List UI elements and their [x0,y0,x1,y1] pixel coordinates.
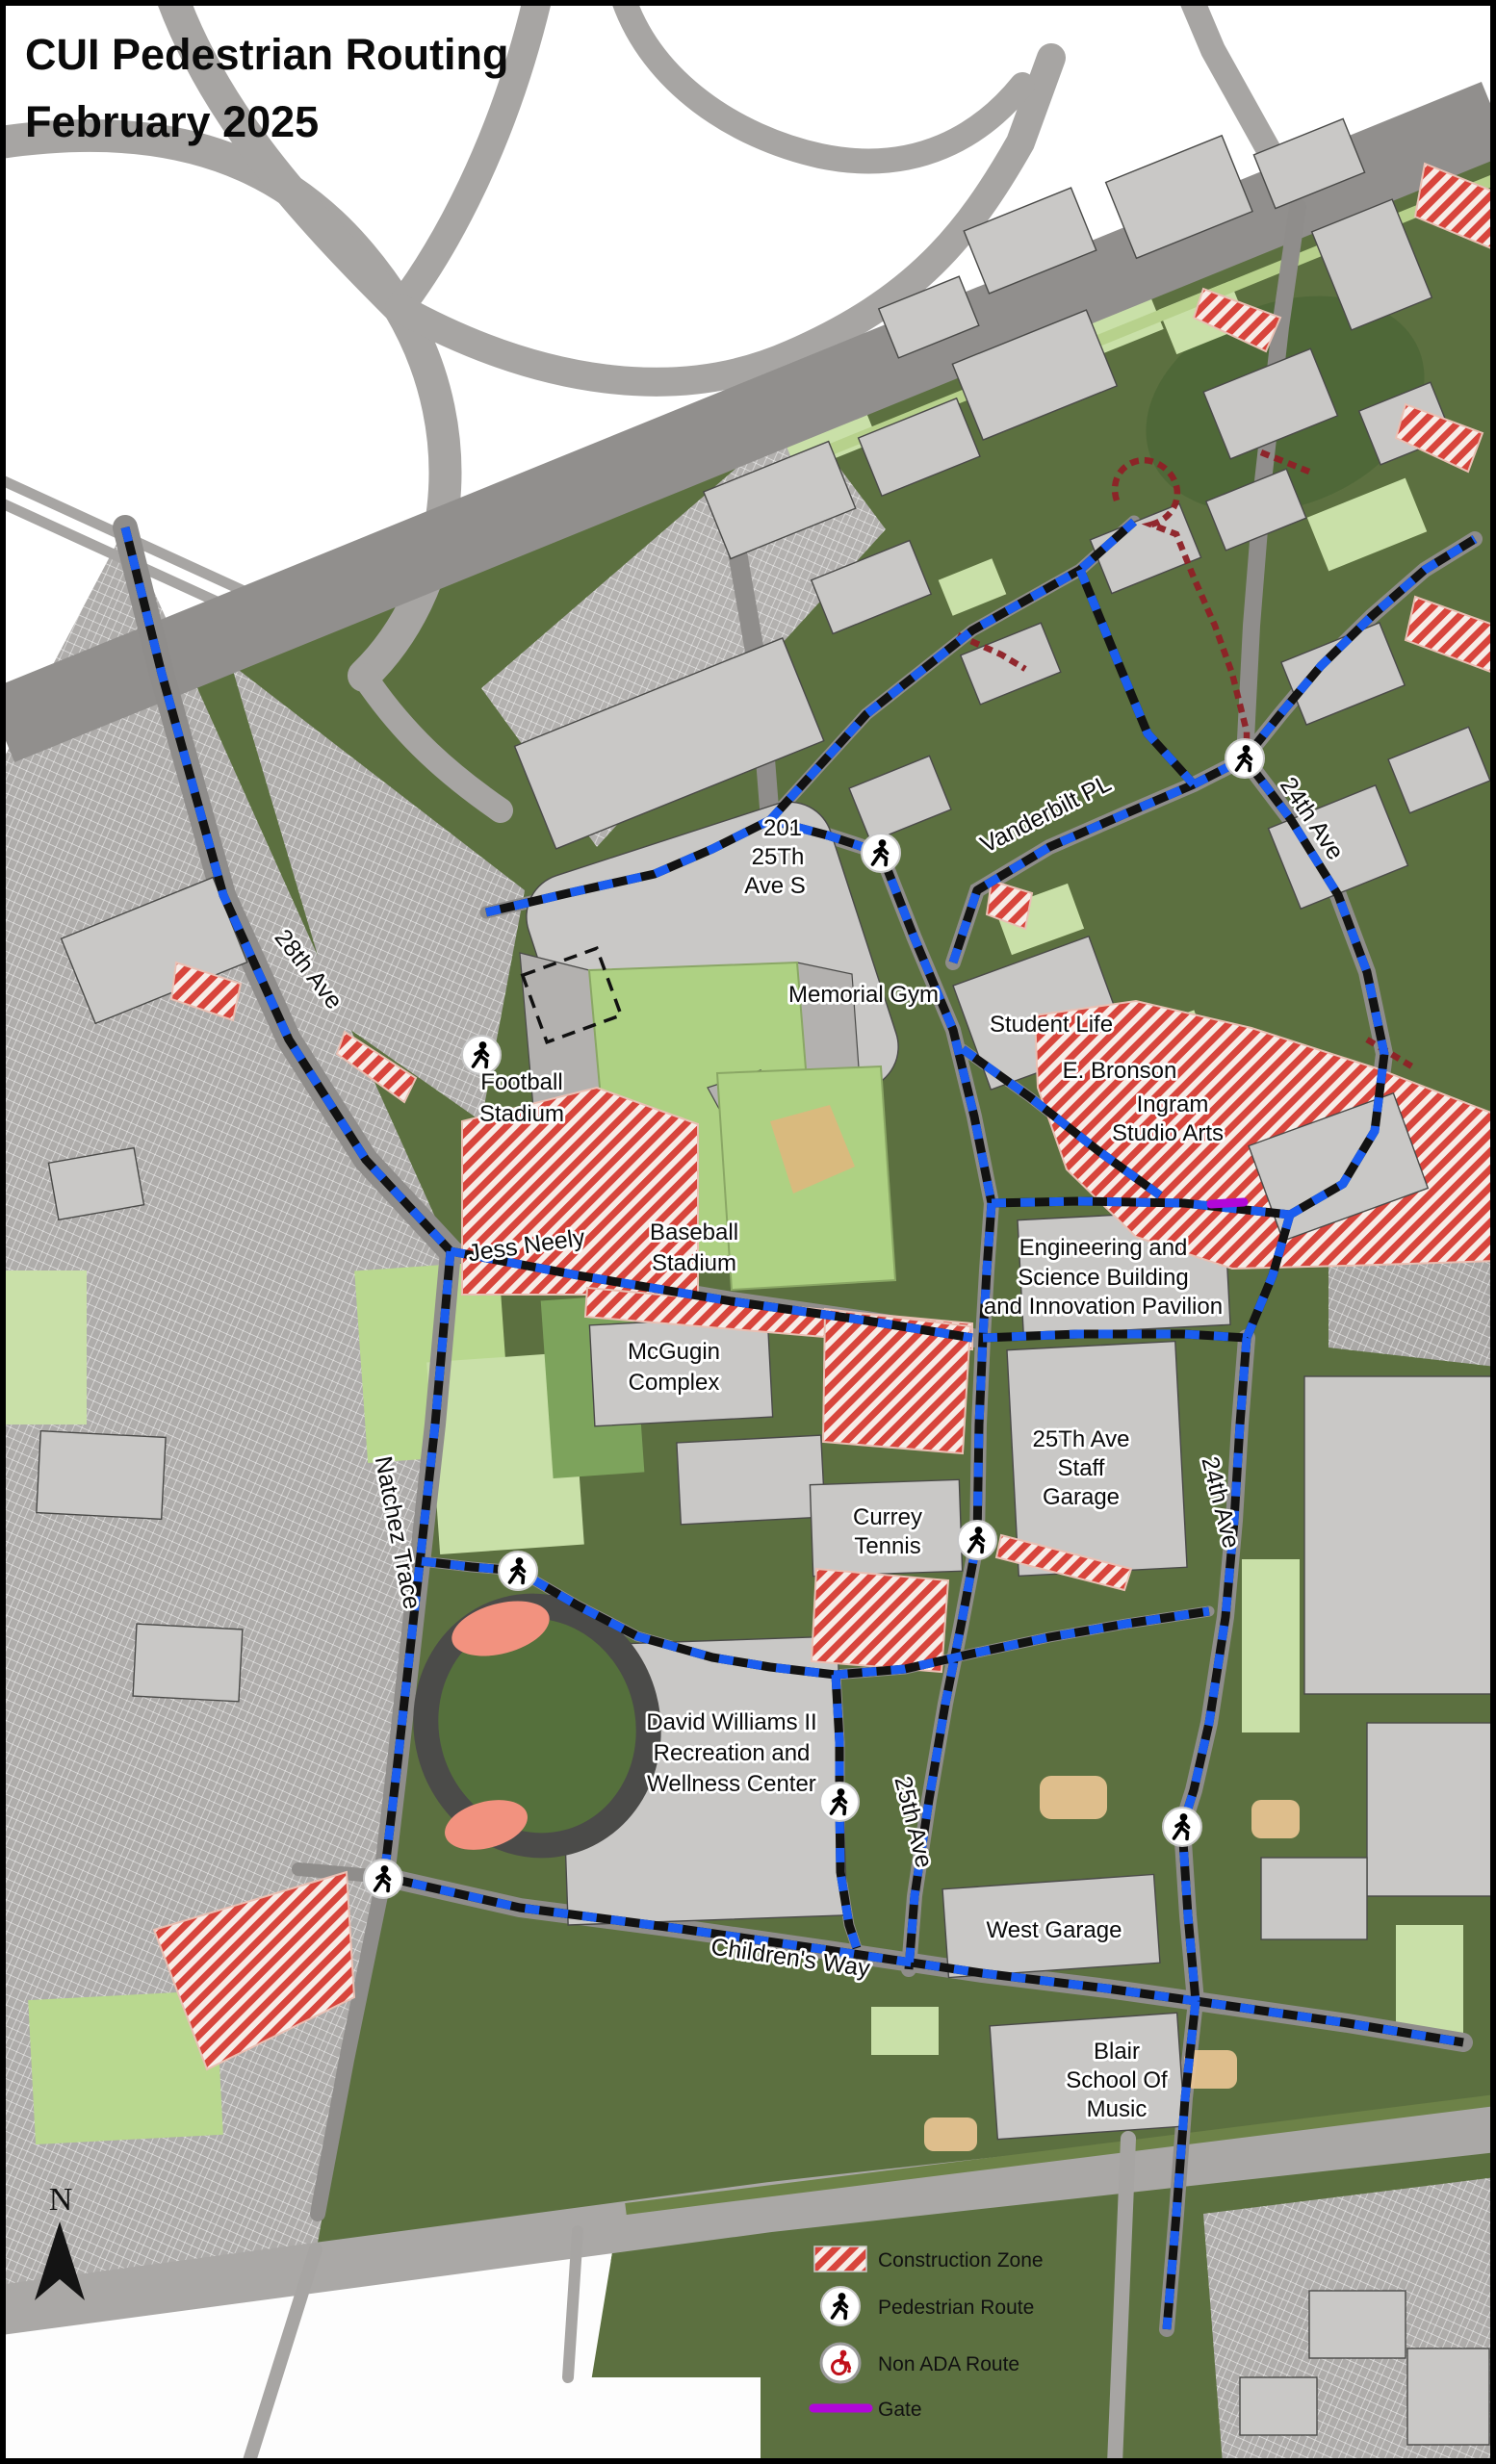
legend-pedestrian-icon [821,2287,860,2325]
pedestrian-icon [1163,1808,1201,1846]
svg-text:25Th: 25Th [752,844,805,870]
pedestrian-icon [958,1521,996,1559]
label-201-25th-ave-s: 201 [763,815,802,841]
pedestrian-icon [364,1860,402,1898]
svg-text:Recreation and: Recreation and [654,1740,811,1766]
svg-text:School Of: School Of [1066,2067,1168,2093]
north-label: N [49,2182,73,2218]
label-engineering: Engineering and [1019,1235,1188,1261]
title-line-1: CUI Pedestrian Routing [25,30,509,79]
legend-gate-label: Gate [878,2399,922,2421]
gate-line [1211,1202,1244,1204]
svg-text:Studio Arts: Studio Arts [1112,1120,1224,1146]
label-staff-garage: 25Th Ave [1033,1426,1130,1452]
svg-text:Staff: Staff [1058,1455,1105,1481]
label-currey-tennis: Currey [853,1504,922,1530]
label-blair: Blair [1094,2039,1140,2065]
campus-map: 28th Ave Natchez Trace Jess Neely Childr… [0,0,1496,2464]
legend-non-ada-icon [821,2344,860,2382]
pedestrian-icon [862,834,900,872]
svg-text:Wellness Center: Wellness Center [647,1771,816,1797]
svg-text:Stadium: Stadium [479,1101,564,1127]
svg-text:Ingram: Ingram [1137,1091,1209,1117]
svg-text:Tennis: Tennis [854,1533,920,1559]
svg-text:Stadium: Stadium [652,1250,736,1276]
legend-construction-label: Construction Zone [878,2249,1044,2271]
legend-pedestrian-label: Pedestrian Route [878,2297,1034,2319]
legend-non-ada-label: Non ADA Route [878,2353,1019,2375]
pedestrian-icon [462,1036,501,1074]
svg-text:Music: Music [1087,2096,1148,2122]
svg-text:Garage: Garage [1043,1484,1120,1510]
label-e-bronson: E. Bronson [1063,1058,1177,1084]
svg-text:Science Building: Science Building [1018,1265,1188,1291]
title-line-2: February 2025 [25,97,319,146]
label-david-williams: David Williams II [646,1709,816,1735]
svg-text:Ave S: Ave S [744,873,806,899]
svg-text:and Innovation Pavilion: and Innovation Pavilion [984,1294,1223,1320]
label-student-life: Student Life [990,1012,1113,1038]
label-baseball-stadium: Baseball [650,1219,738,1245]
label-football-stadium: Football [480,1069,562,1095]
label-mcgugin: McGugin [628,1339,720,1365]
label-west-garage: West Garage [987,1917,1122,1943]
legend-construction-swatch [814,2246,866,2271]
pedestrian-icon [1225,739,1264,778]
pedestrian-icon [499,1552,537,1590]
svg-text:Complex: Complex [629,1370,720,1396]
pedestrian-icon [820,1783,859,1821]
label-memorial-gym: Memorial Gym [788,982,939,1008]
